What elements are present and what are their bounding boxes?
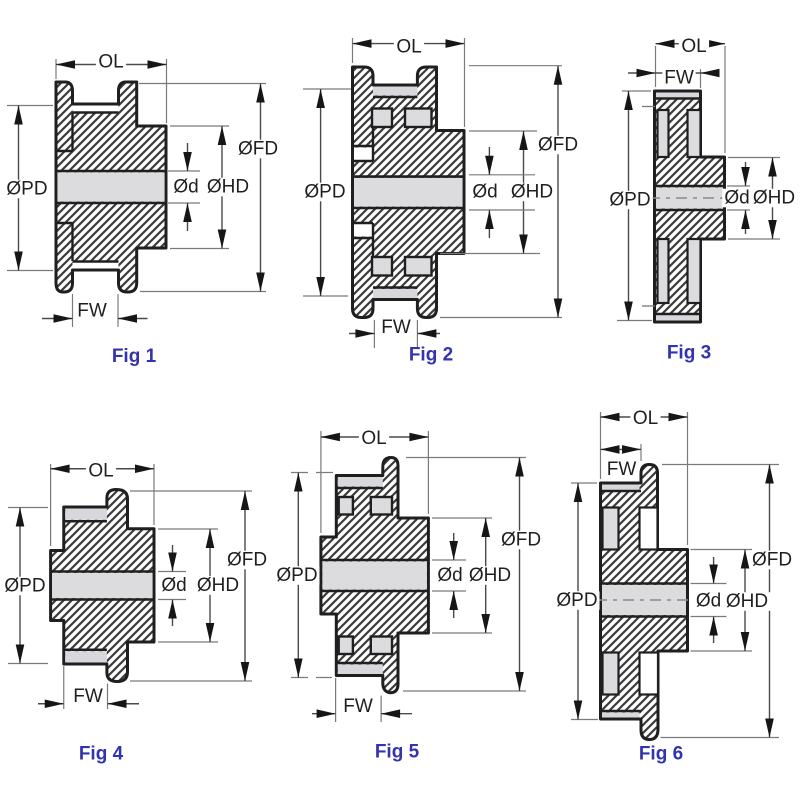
svg-text:ØPD: ØPD xyxy=(609,190,650,211)
svg-text:Fig 5: Fig 5 xyxy=(375,742,420,763)
svg-text:ØPD: ØPD xyxy=(556,590,597,611)
svg-text:OL: OL xyxy=(633,408,658,429)
svg-text:Ød: Ød xyxy=(696,591,721,612)
svg-text:Ød: Ød xyxy=(437,565,462,586)
svg-text:ØFD: ØFD xyxy=(501,530,541,551)
svg-text:Fig 3: Fig 3 xyxy=(667,343,711,364)
svg-text:ØPD: ØPD xyxy=(276,565,317,586)
svg-text:FW: FW xyxy=(607,459,637,480)
svg-text:OL: OL xyxy=(98,52,123,73)
svg-text:ØHD: ØHD xyxy=(511,182,553,203)
svg-text:FW: FW xyxy=(73,686,103,707)
svg-text:Ød: Ød xyxy=(724,188,749,209)
svg-text:Ød: Ød xyxy=(161,575,186,596)
svg-text:OL: OL xyxy=(361,428,386,449)
svg-text:Fig 4: Fig 4 xyxy=(79,744,124,765)
svg-text:ØPD: ØPD xyxy=(6,179,47,200)
svg-text:ØFD: ØFD xyxy=(238,139,278,160)
svg-text:OL: OL xyxy=(681,36,706,57)
svg-text:ØHD: ØHD xyxy=(726,591,768,612)
svg-text:ØHD: ØHD xyxy=(197,575,239,596)
svg-text:Fig 2: Fig 2 xyxy=(409,345,453,366)
svg-text:Ød: Ød xyxy=(173,177,198,198)
svg-text:ØHD: ØHD xyxy=(469,565,511,586)
svg-text:OL: OL xyxy=(88,461,113,482)
svg-text:ØHD: ØHD xyxy=(753,188,795,209)
svg-text:FW: FW xyxy=(77,301,107,322)
svg-text:FW: FW xyxy=(664,68,694,89)
svg-text:ØFD: ØFD xyxy=(538,135,578,156)
svg-text:Fig 6: Fig 6 xyxy=(639,744,683,765)
svg-text:ØFD: ØFD xyxy=(227,550,267,571)
svg-text:ØFD: ØFD xyxy=(752,550,792,571)
svg-text:OL: OL xyxy=(396,37,421,58)
svg-text:ØPD: ØPD xyxy=(304,182,345,203)
svg-text:Fig 1: Fig 1 xyxy=(112,346,157,367)
svg-text:ØPD: ØPD xyxy=(4,576,45,597)
svg-text:FW: FW xyxy=(343,696,373,717)
svg-text:Ød: Ød xyxy=(472,182,497,203)
svg-text:FW: FW xyxy=(381,317,411,338)
svg-text:ØHD: ØHD xyxy=(207,177,249,198)
